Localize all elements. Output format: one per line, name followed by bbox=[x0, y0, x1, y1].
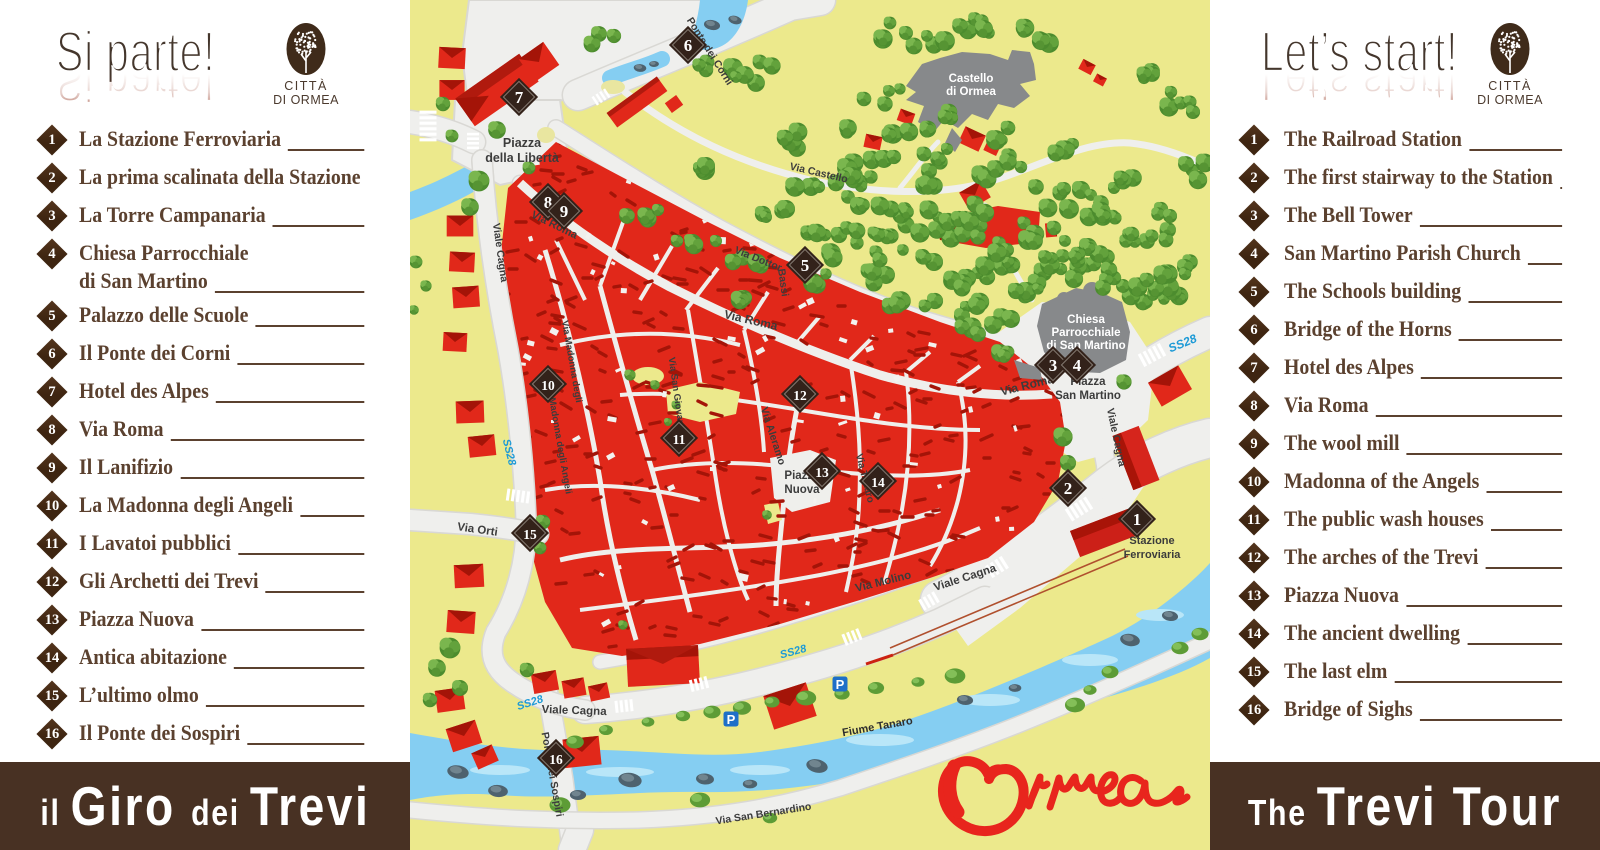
svg-text:1: 1 bbox=[1133, 510, 1142, 529]
svg-text:Chiesa: Chiesa bbox=[1067, 314, 1105, 326]
svg-text:2: 2 bbox=[1064, 479, 1073, 498]
svg-text:16: 16 bbox=[549, 752, 563, 767]
svg-text:di San Martino: di San Martino bbox=[1046, 340, 1125, 352]
svg-text:Ferroviaria: Ferroviaria bbox=[1124, 549, 1182, 561]
svg-text:Piazza: Piazza bbox=[503, 136, 542, 150]
svg-text:4: 4 bbox=[1073, 356, 1082, 375]
svg-text:14: 14 bbox=[871, 475, 885, 490]
svg-text:San Martino: San Martino bbox=[1055, 390, 1121, 402]
svg-text:P: P bbox=[836, 677, 845, 692]
svg-text:9: 9 bbox=[560, 202, 569, 221]
svg-text:15: 15 bbox=[523, 527, 537, 542]
svg-text:13: 13 bbox=[815, 465, 829, 480]
svg-text:Nuova: Nuova bbox=[784, 484, 820, 496]
svg-text:5: 5 bbox=[801, 256, 810, 275]
svg-text:3: 3 bbox=[1049, 356, 1058, 375]
svg-text:6: 6 bbox=[684, 36, 693, 55]
svg-text:11: 11 bbox=[673, 432, 686, 447]
svg-text:Castello: Castello bbox=[949, 73, 994, 85]
svg-text:P: P bbox=[727, 712, 736, 727]
svg-text:7: 7 bbox=[515, 88, 524, 107]
svg-text:della Libertà: della Libertà bbox=[485, 151, 559, 165]
svg-text:Parrocchiale: Parrocchiale bbox=[1051, 327, 1120, 339]
svg-text:Viale Cagna: Viale Cagna bbox=[541, 704, 607, 718]
svg-text:di Ormea: di Ormea bbox=[946, 86, 996, 98]
svg-text:10: 10 bbox=[541, 378, 555, 393]
svg-text:12: 12 bbox=[793, 388, 807, 403]
